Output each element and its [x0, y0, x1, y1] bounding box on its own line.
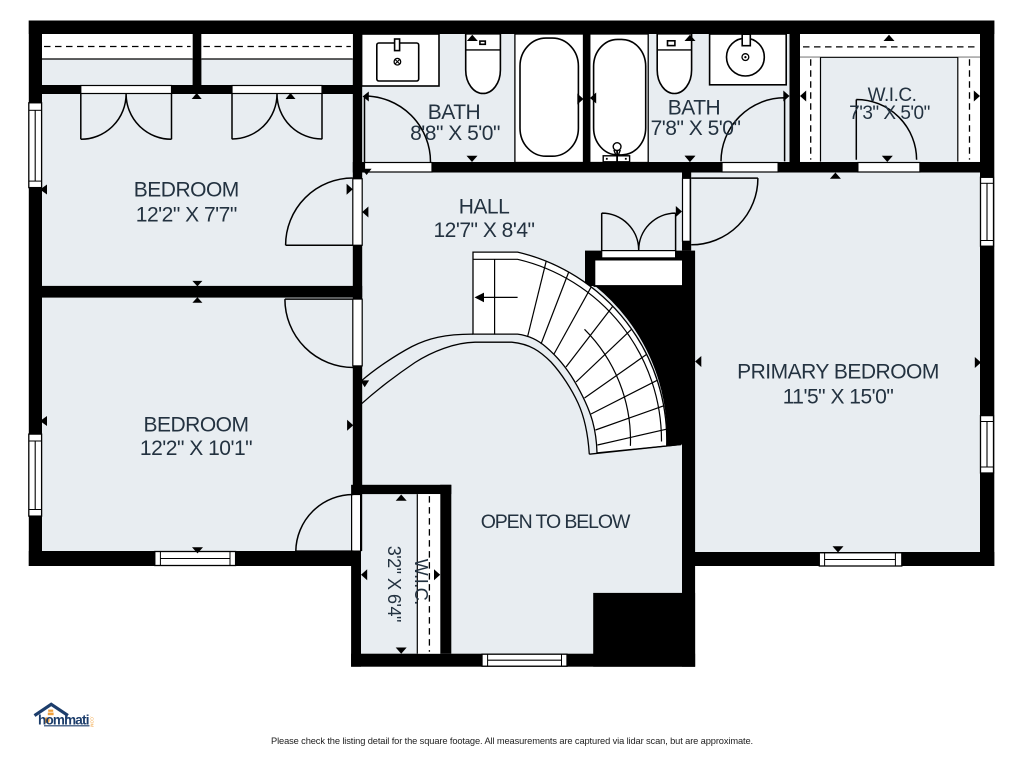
svg-text:hommati: hommati	[38, 712, 89, 727]
svg-text:11'5" X 15'0": 11'5" X 15'0"	[783, 386, 894, 409]
svg-text:BEDROOM: BEDROOM	[134, 179, 239, 202]
svg-text:BEDROOM: BEDROOM	[143, 414, 248, 437]
svg-text:12'2" X 7'7": 12'2" X 7'7"	[136, 204, 237, 227]
svg-text:12'7" X 8'4": 12'7" X 8'4"	[434, 219, 535, 242]
svg-text:Please check the listing detai: Please check the listing detail for the …	[271, 736, 753, 746]
svg-text:7'3" X 5'0": 7'3" X 5'0"	[849, 103, 930, 124]
svg-text:8'8" X 5'0": 8'8" X 5'0"	[410, 122, 500, 145]
svg-text:7'8" X 5'0": 7'8" X 5'0"	[651, 117, 741, 140]
svg-text:BATH: BATH	[428, 101, 480, 124]
svg-text:PRIMARY BEDROOM: PRIMARY BEDROOM	[737, 361, 939, 384]
svg-text:OPEN TO BELOW: OPEN TO BELOW	[481, 511, 631, 533]
svg-text:12'2" X 10'1": 12'2" X 10'1"	[140, 437, 252, 460]
svg-text:3'2" X 6'4": 3'2" X 6'4"	[384, 546, 404, 622]
svg-text:HALL: HALL	[459, 196, 510, 219]
svg-text:.COM: .COM	[89, 716, 94, 727]
svg-text:W.I.C.: W.I.C.	[411, 559, 431, 605]
